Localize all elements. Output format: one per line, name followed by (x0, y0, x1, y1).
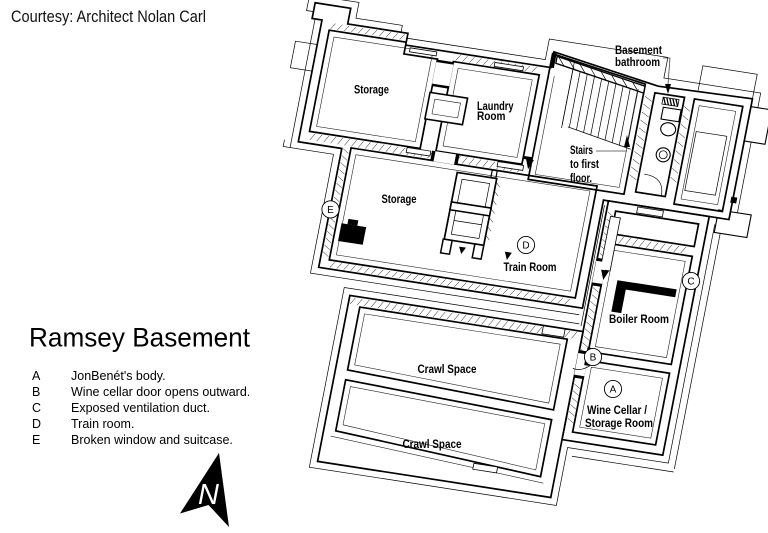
svg-text:E: E (327, 205, 334, 216)
svg-text:D: D (522, 241, 529, 252)
svg-text:B: B (590, 353, 597, 364)
svg-text:to first: to first (570, 157, 599, 171)
svg-text:Wine cellar door opens outward: Wine cellar door opens outward. (71, 385, 250, 399)
svg-text:Train Room: Train Room (504, 260, 557, 274)
svg-text:Room: Room (477, 109, 506, 123)
svg-text:Storage: Storage (354, 83, 389, 97)
svg-text:JonBenét's body.: JonBenét's body. (71, 369, 166, 383)
svg-text:E: E (32, 433, 40, 447)
svg-text:Crawl Space: Crawl Space (403, 437, 462, 451)
svg-text:A: A (610, 385, 617, 396)
svg-text:Crawl Space: Crawl Space (418, 362, 477, 376)
svg-text:Train room.: Train room. (71, 417, 134, 431)
svg-text:C: C (687, 277, 694, 288)
svg-text:Courtesy: Architect Nolan Carl: Courtesy: Architect Nolan Carl (11, 8, 206, 26)
svg-text:N: N (198, 479, 219, 511)
svg-text:Stairs: Stairs (570, 143, 593, 157)
svg-text:B: B (32, 385, 40, 399)
svg-text:Storage Room: Storage Room (585, 416, 653, 430)
svg-text:bathroom: bathroom (615, 55, 660, 69)
svg-text:Boiler Room: Boiler Room (609, 312, 669, 326)
svg-text:Exposed ventilation duct.: Exposed ventilation duct. (71, 401, 210, 415)
svg-text:Storage: Storage (382, 192, 417, 206)
svg-text:A: A (32, 369, 41, 383)
svg-text:floor.: floor. (570, 171, 592, 185)
svg-text:D: D (32, 417, 41, 431)
svg-text:C: C (32, 401, 41, 415)
svg-text:Wine Cellar /: Wine Cellar / (587, 403, 648, 417)
svg-text:Ramsey Basement: Ramsey Basement (29, 323, 251, 353)
svg-text:Broken window and suitcase.: Broken window and suitcase. (71, 433, 233, 447)
